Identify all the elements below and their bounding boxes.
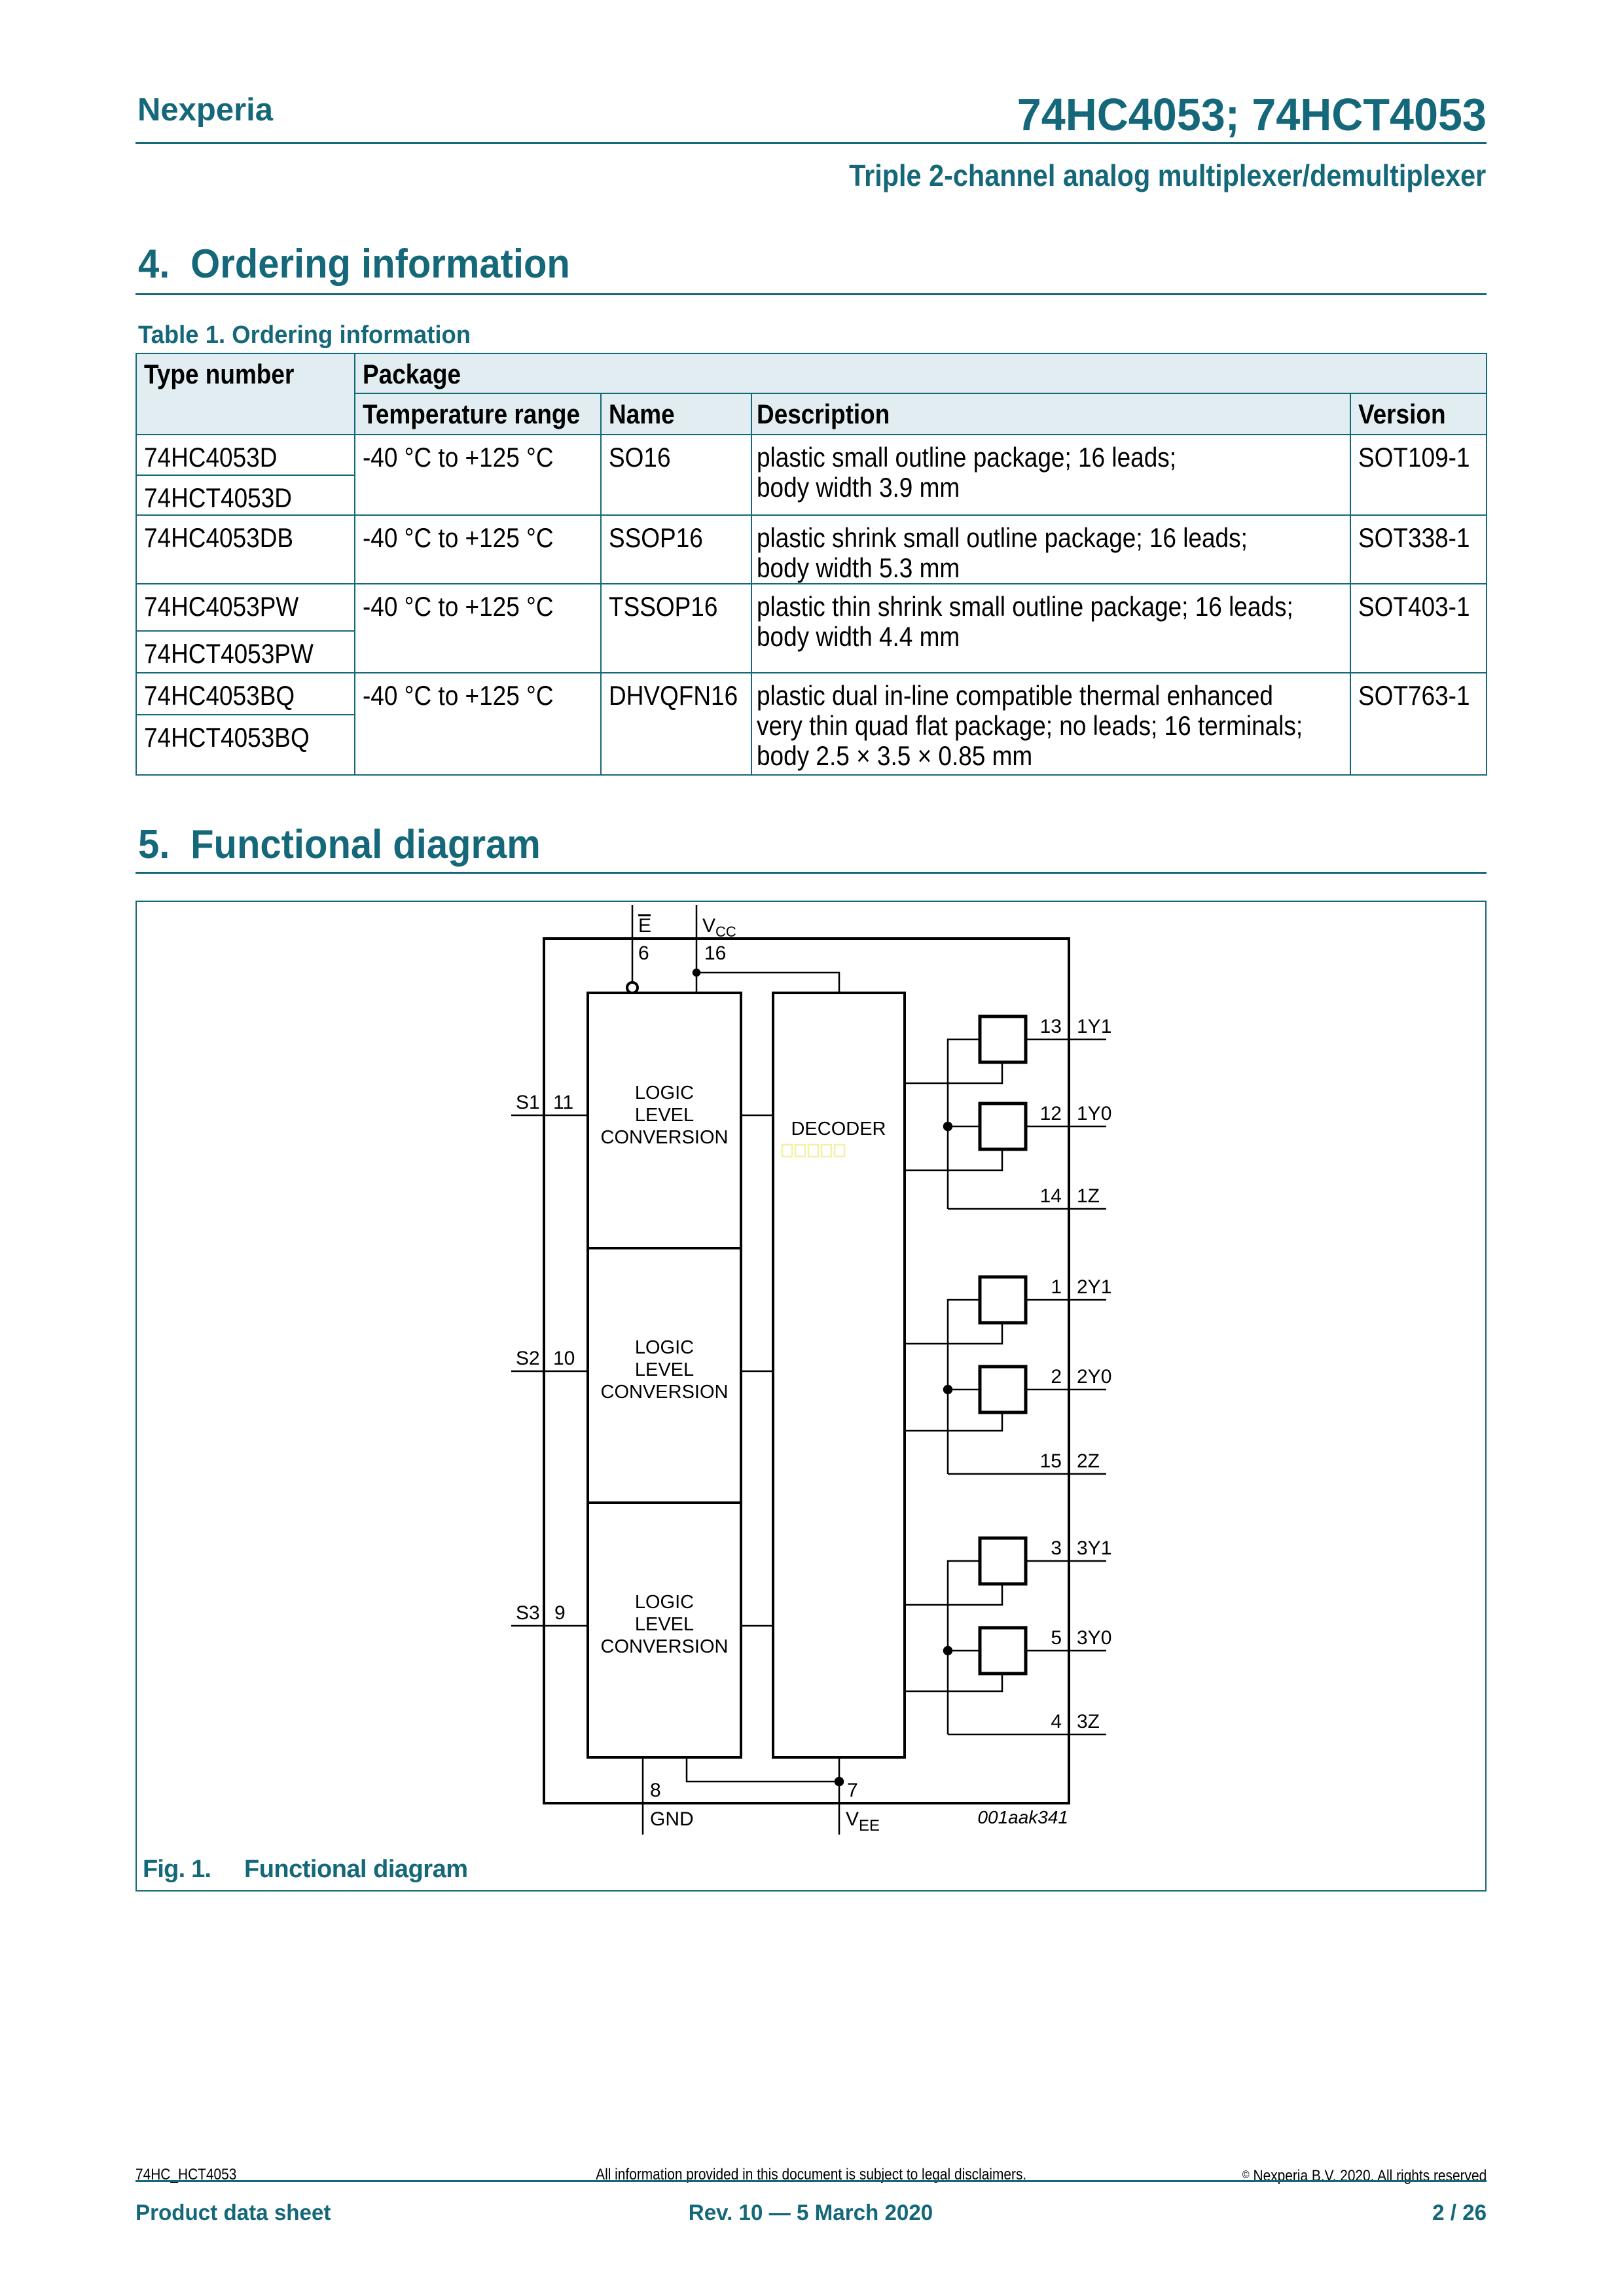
svg-text:LOGIC: LOGIC (635, 1592, 694, 1613)
svg-text:Functional diagram: Functional diagram (244, 1856, 468, 1883)
svg-text:4: 4 (1051, 1711, 1062, 1732)
svg-text:14: 14 (1040, 1185, 1062, 1207)
svg-text:2: 2 (1051, 1366, 1062, 1388)
svg-text:Fig. 1.: Fig. 1. (143, 1856, 211, 1883)
svg-text:VCC: VCC (702, 915, 736, 940)
svg-text:13: 13 (1040, 1016, 1062, 1037)
svg-text:S2: S2 (516, 1348, 540, 1369)
svg-text:GND: GND (650, 1808, 694, 1830)
svg-text:16: 16 (704, 942, 726, 964)
svg-text:S1: S1 (516, 1092, 540, 1113)
svg-text:LEVEL: LEVEL (635, 1614, 694, 1635)
svg-text:LEVEL: LEVEL (635, 1359, 694, 1380)
svg-text:3Y0: 3Y0 (1077, 1627, 1111, 1649)
svg-text:2Y0: 2Y0 (1077, 1366, 1111, 1388)
svg-text:E: E (638, 915, 651, 937)
svg-text:VEE: VEE (846, 1808, 880, 1835)
svg-text:3Z: 3Z (1077, 1711, 1100, 1732)
svg-text:2Y1: 2Y1 (1077, 1276, 1111, 1298)
svg-text:DECODER: DECODER (791, 1119, 886, 1139)
svg-text:3: 3 (1051, 1537, 1062, 1559)
svg-text:1Z: 1Z (1077, 1185, 1100, 1207)
svg-text:11: 11 (553, 1092, 573, 1113)
svg-text:1Y1: 1Y1 (1077, 1016, 1111, 1037)
svg-text:CONVERSION: CONVERSION (601, 1382, 729, 1403)
svg-text:1: 1 (1051, 1276, 1062, 1298)
svg-text:S3: S3 (516, 1602, 540, 1624)
svg-text:5: 5 (1051, 1627, 1062, 1649)
svg-text:15: 15 (1040, 1450, 1062, 1472)
svg-text:LOGIC: LOGIC (635, 1337, 694, 1358)
svg-text:10: 10 (553, 1348, 575, 1369)
svg-text:7: 7 (847, 1780, 858, 1801)
svg-text:001aak341: 001aak341 (977, 1807, 1068, 1827)
svg-text:3Y1: 3Y1 (1077, 1537, 1111, 1559)
svg-text:6: 6 (638, 942, 649, 964)
svg-text:1Y0: 1Y0 (1077, 1103, 1111, 1124)
svg-text:CONVERSION: CONVERSION (601, 1636, 729, 1657)
svg-text:12: 12 (1040, 1103, 1062, 1124)
svg-text:LOGIC: LOGIC (635, 1083, 694, 1103)
svg-text:8: 8 (650, 1780, 661, 1801)
svg-text:CONVERSION: CONVERSION (601, 1127, 729, 1148)
svg-text:2Z: 2Z (1077, 1450, 1100, 1472)
svg-text:9: 9 (554, 1602, 566, 1624)
svg-text:LEVEL: LEVEL (635, 1105, 694, 1126)
